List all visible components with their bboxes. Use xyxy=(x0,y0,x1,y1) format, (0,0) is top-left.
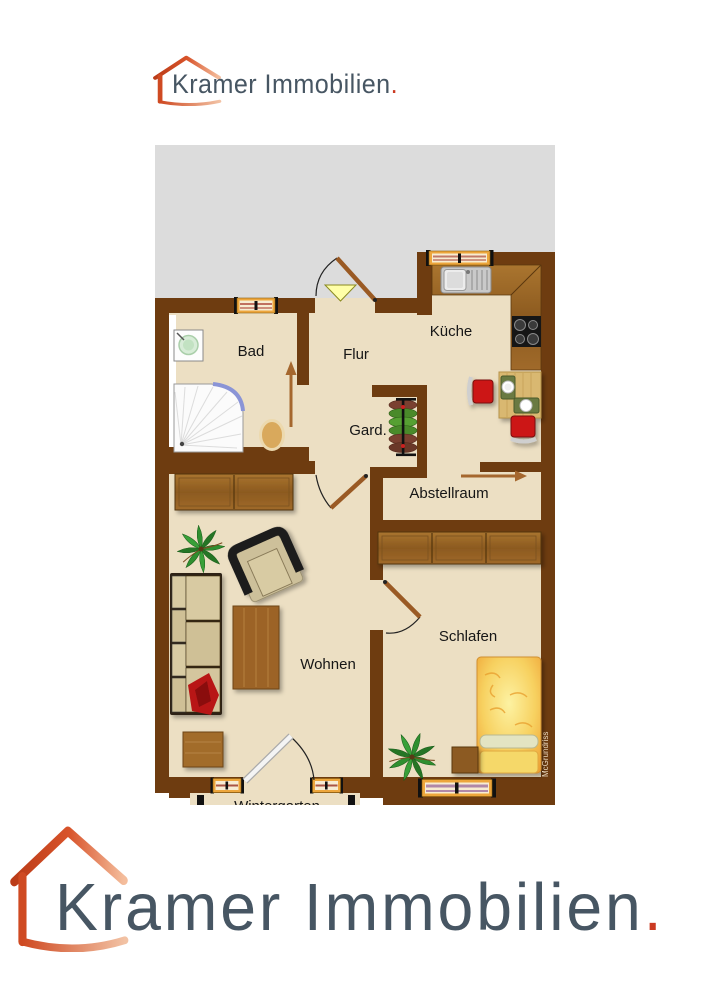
cooktop xyxy=(512,316,541,347)
nightstand xyxy=(452,747,478,773)
window-schlafen xyxy=(418,779,496,798)
wintergarten-post xyxy=(197,795,204,805)
room-label-abstellraum: Abstellraum xyxy=(409,485,488,502)
watermark: McGrundriss xyxy=(541,732,550,777)
floor-plan: Bad Flur Küche Gard. Abstellraum Wohnen … xyxy=(155,145,555,805)
sofa xyxy=(170,573,222,715)
room-label-wintergarten: Wintergarten xyxy=(234,798,320,805)
brand-logo-bottom: Kramer Immobilien. xyxy=(5,818,705,978)
chair xyxy=(511,416,535,437)
room-label-flur: Flur xyxy=(343,346,369,363)
coffee-table xyxy=(233,606,279,689)
brand-dot: . xyxy=(644,870,665,945)
window-wohnen-right xyxy=(310,778,343,794)
toilet xyxy=(261,421,284,450)
brand-dot: . xyxy=(391,69,398,99)
shower xyxy=(174,384,243,452)
brand-name: Kramer Immobilien. xyxy=(55,874,664,941)
wintergarten-post xyxy=(348,795,355,805)
window-wohnen-left xyxy=(211,778,245,794)
side-table xyxy=(183,732,223,767)
brand-logo-top: Kramer Immobilien. xyxy=(150,52,480,122)
bed xyxy=(477,657,541,773)
brand-name: Kramer Immobilien. xyxy=(172,71,398,98)
window-kitchen xyxy=(426,250,494,266)
wardrobe xyxy=(378,532,541,564)
room-label-schlafen: Schlafen xyxy=(439,628,497,645)
coat-rack xyxy=(389,398,417,456)
sideboard xyxy=(175,474,293,510)
brand-name-text: Kramer Immobilien xyxy=(172,69,391,99)
room-label-wohnen: Wohnen xyxy=(300,656,356,673)
room-label-bad: Bad xyxy=(238,343,265,360)
wintergarten-opening xyxy=(243,777,312,793)
kitchen-sink xyxy=(441,267,491,293)
room-label-kueche: Küche xyxy=(430,323,473,340)
window-bad xyxy=(234,297,278,314)
room-label-garderobe: Gard. xyxy=(349,422,387,439)
washbasin xyxy=(174,330,203,361)
brand-name-text: Kramer Immobilien xyxy=(55,870,644,945)
chair xyxy=(473,380,493,403)
chair-back xyxy=(469,377,471,405)
